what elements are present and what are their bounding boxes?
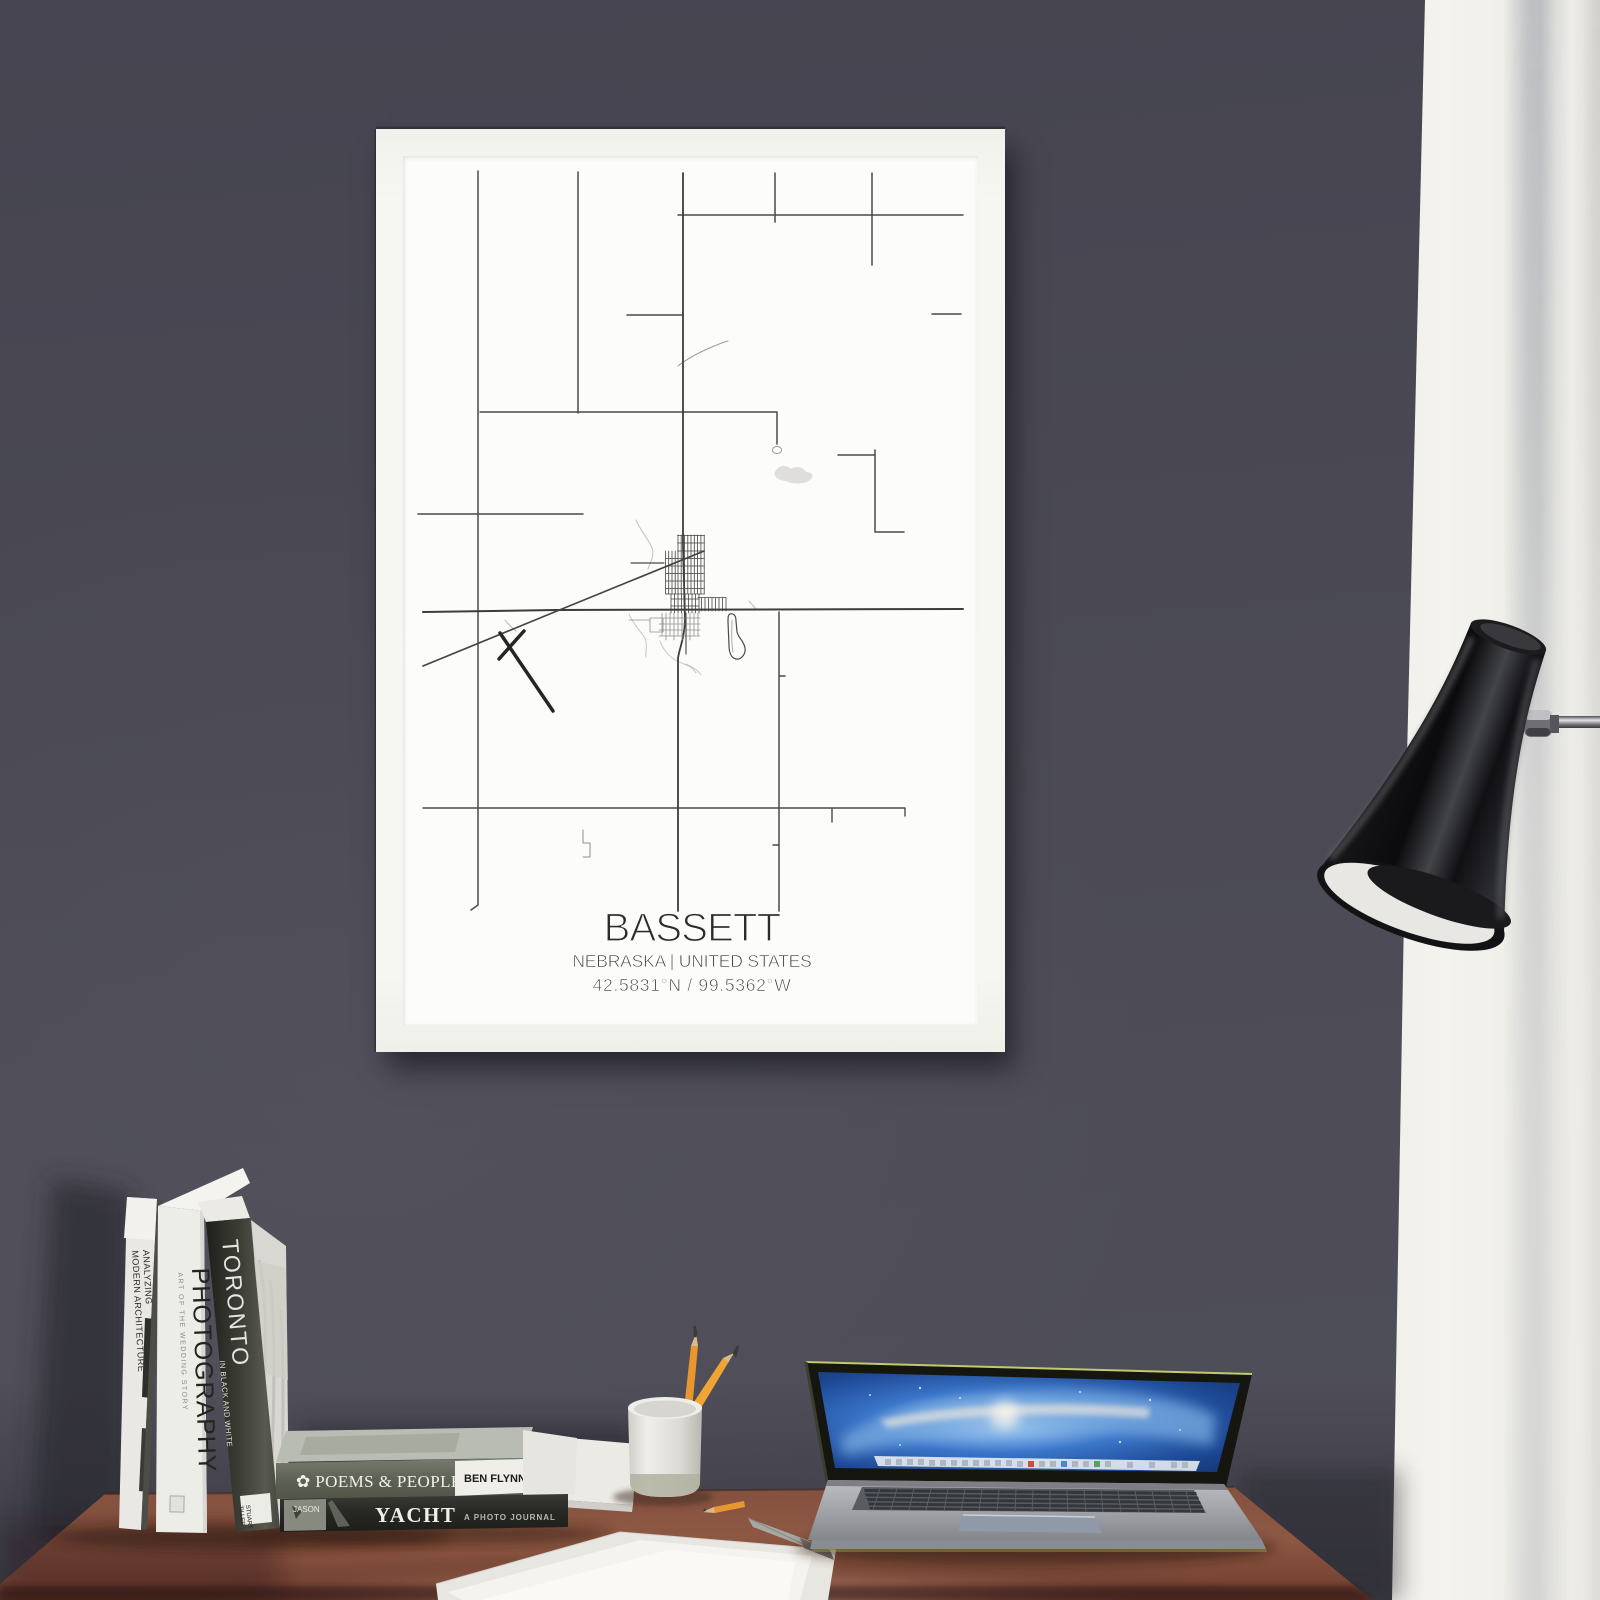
svg-text:JASON: JASON (293, 1505, 320, 1514)
svg-text:BEN FLYNN: BEN FLYNN (464, 1473, 526, 1485)
svg-text:YACHT: YACHT (375, 1503, 456, 1527)
svg-text:A PHOTO JOURNAL: A PHOTO JOURNAL (464, 1513, 556, 1522)
svg-text:✿ POEMS & PEOPLE: ✿ POEMS & PEOPLE (296, 1472, 462, 1491)
